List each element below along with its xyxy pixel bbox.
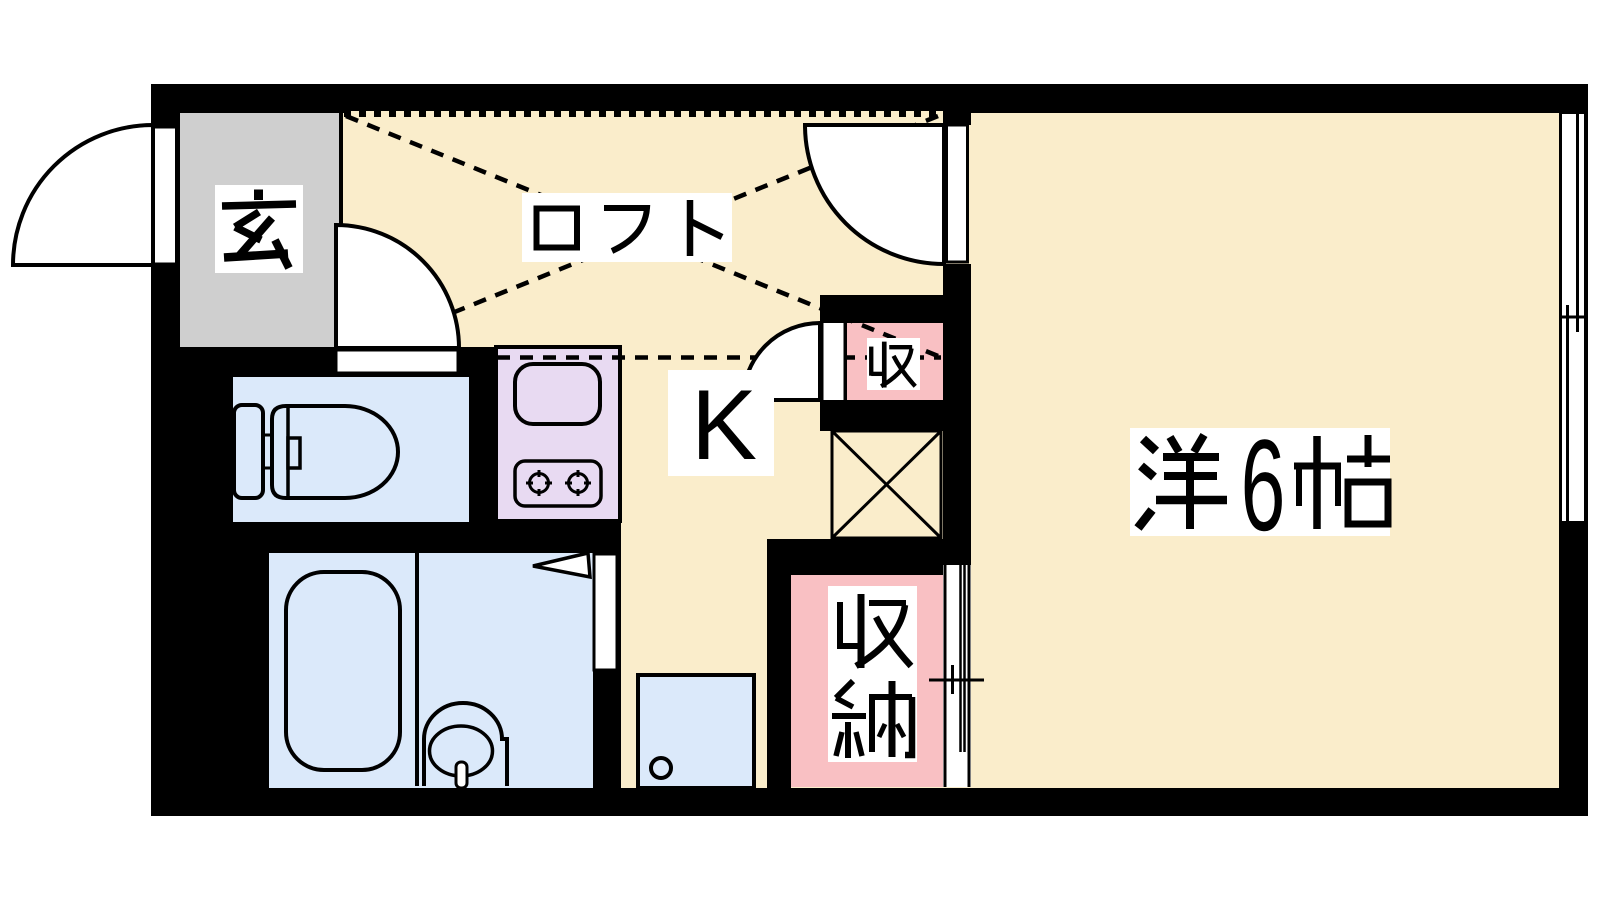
svg-text:K: K: [691, 369, 757, 480]
svg-text:6: 6: [1241, 412, 1286, 557]
